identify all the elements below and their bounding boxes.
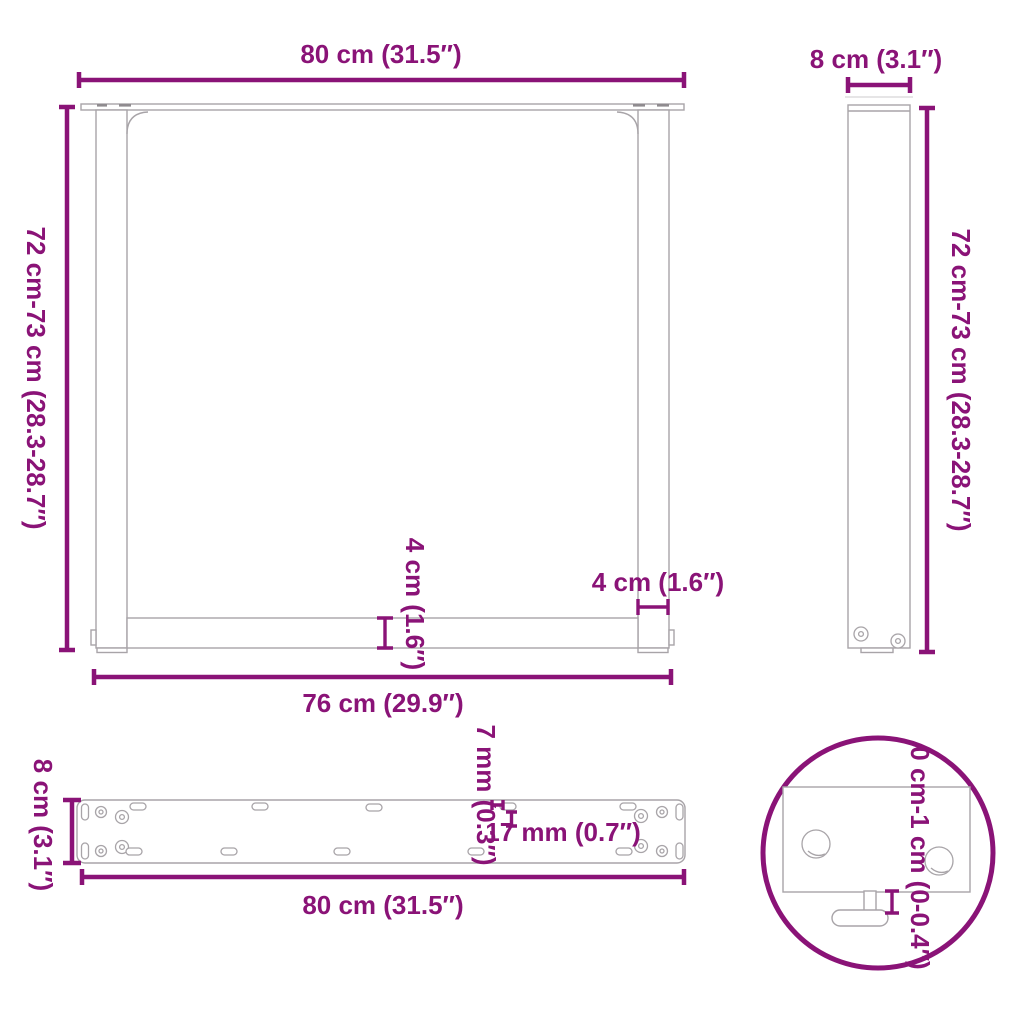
plate-screw-center bbox=[99, 810, 103, 814]
side-view: 8 cm (3.1″) 72 cm-73 cm (28.3-28.7″) bbox=[810, 44, 976, 653]
plate-screw-center bbox=[660, 810, 664, 814]
front-inner-width-dimension-line bbox=[94, 669, 671, 685]
plate-slot-horizontal bbox=[221, 848, 237, 855]
plate-slot-vertical bbox=[676, 804, 683, 820]
front-plate-slot-mark bbox=[657, 104, 669, 107]
detail-adjustment-label: 0 cm-1 cm (0-0.4″) bbox=[905, 746, 935, 969]
plate-top-view: 8 cm (3.1″) 80 cm (31.5″) 7 mm (0.3″) 17… bbox=[28, 724, 685, 920]
side-depth-label: 8 cm (3.1″) bbox=[810, 44, 942, 74]
plate-screw-center bbox=[120, 845, 125, 850]
front-top-width-label: 80 cm (31.5″) bbox=[300, 39, 461, 69]
diagram-svg: 80 cm (31.5″) 72 cm-73 cm (28.3-28.7″) 7… bbox=[0, 0, 1024, 1024]
front-height-label: 72 cm-73 cm (28.3-28.7″) bbox=[21, 227, 51, 530]
front-plate-slot-mark bbox=[97, 104, 107, 107]
front-left-adjuster-nub bbox=[91, 630, 96, 645]
plate-slot-horizontal bbox=[252, 803, 268, 810]
plate-slot-horizontal bbox=[616, 848, 632, 855]
front-left-foot bbox=[97, 648, 127, 653]
plate-slot-vertical bbox=[676, 843, 683, 859]
side-depth-dimension-line bbox=[848, 77, 910, 93]
plate-screw-center bbox=[99, 849, 103, 853]
plate-slot-horizontal bbox=[126, 848, 142, 855]
front-right-adjuster-nub bbox=[669, 630, 674, 645]
front-crossbar-height-label: 4 cm (1.6″) bbox=[400, 538, 430, 670]
plate-slot-horizontal bbox=[130, 803, 146, 810]
front-top-plate-outline bbox=[81, 104, 684, 110]
plate-screw-center bbox=[120, 815, 125, 820]
front-height-dimension-line bbox=[59, 107, 75, 650]
detail-circle-view: 0 cm-1 cm (0-0.4″) bbox=[763, 738, 993, 970]
front-right-foot bbox=[638, 648, 668, 653]
front-plate-slot-mark bbox=[633, 104, 645, 107]
plate-width-dimension-line bbox=[82, 869, 684, 885]
plate-screw-center bbox=[660, 849, 664, 853]
front-plate-slot-mark bbox=[119, 104, 131, 107]
front-inner-width-label: 76 cm (29.9″) bbox=[302, 688, 463, 718]
front-left-leg-outline bbox=[96, 110, 127, 648]
front-view: 80 cm (31.5″) 72 cm-73 cm (28.3-28.7″) 7… bbox=[21, 39, 724, 718]
front-right-leg-fillet bbox=[617, 112, 638, 134]
side-height-label: 72 cm-73 cm (28.3-28.7″) bbox=[946, 229, 976, 532]
plate-slot-vertical bbox=[82, 843, 89, 859]
front-left-leg-fillet bbox=[127, 112, 148, 134]
plate-slot-horizontal bbox=[366, 804, 382, 811]
side-leg-outline bbox=[848, 105, 910, 648]
plate-slot-length-label: 17 mm (0.7″) bbox=[485, 817, 641, 847]
detail-foot-disc bbox=[832, 910, 888, 926]
front-crossbar-outline bbox=[127, 618, 638, 648]
side-screw-center bbox=[859, 632, 864, 637]
detail-screw-hole bbox=[802, 830, 830, 858]
front-top-width-dimension-line bbox=[79, 72, 684, 88]
front-leg-width-label: 4 cm (1.6″) bbox=[592, 567, 724, 597]
plate-slot-horizontal bbox=[620, 803, 636, 810]
plate-width-label: 80 cm (31.5″) bbox=[302, 890, 463, 920]
plate-slot-horizontal bbox=[334, 848, 350, 855]
plate-slot-vertical bbox=[82, 804, 89, 820]
side-screw-center bbox=[896, 639, 901, 644]
table-leg-dimension-diagram: 80 cm (31.5″) 72 cm-73 cm (28.3-28.7″) 7… bbox=[0, 0, 1024, 1024]
side-foot bbox=[861, 648, 893, 653]
side-height-dimension-line bbox=[919, 108, 935, 652]
plate-depth-label: 8 cm (3.1″) bbox=[28, 759, 58, 891]
